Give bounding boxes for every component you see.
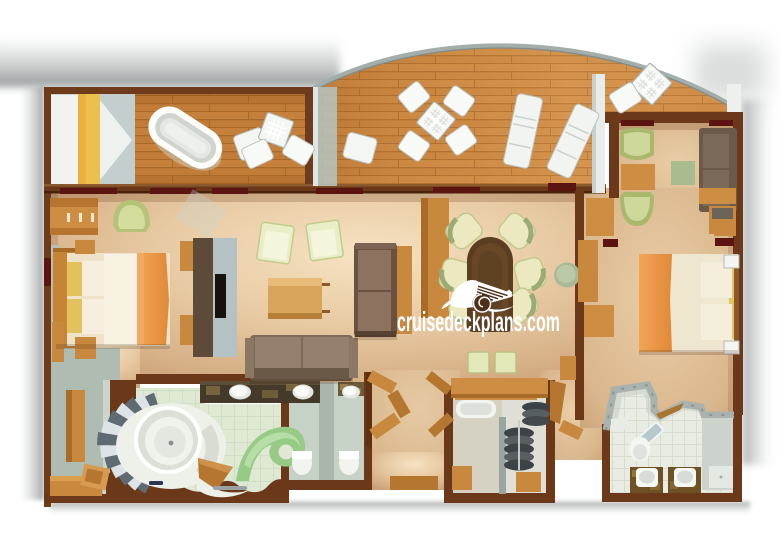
svg-text:cruisedeckplans.com: cruisedeckplans.com [397,306,560,337]
